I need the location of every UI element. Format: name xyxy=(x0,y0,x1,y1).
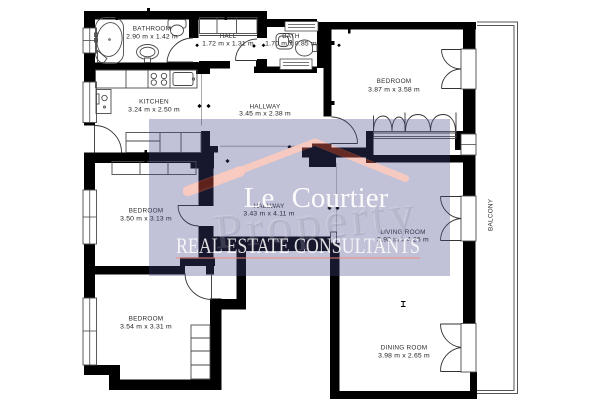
svg-text:BEDROOM: BEDROOM xyxy=(377,78,412,85)
svg-text:3.54 m x 3.31 m: 3.54 m x 3.31 m xyxy=(120,324,172,331)
svg-text:BATHROOM: BATHROOM xyxy=(133,26,171,33)
svg-text:3.98 m x 2.65 m: 3.98 m x 2.65 m xyxy=(378,353,430,360)
svg-text:1.70 m x 0.85 m: 1.70 m x 0.85 m xyxy=(265,41,317,48)
svg-text:3.87 m x 3.58 m: 3.87 m x 3.58 m xyxy=(368,87,420,94)
svg-text:HALL: HALL xyxy=(220,33,237,40)
svg-text:2.90 m x 1.42 m: 2.90 m x 1.42 m xyxy=(126,34,178,41)
svg-text:3.24 m x 2.50 m: 3.24 m x 2.50 m xyxy=(128,107,180,114)
svg-text:1.72 m x 1.31 m: 1.72 m x 1.31 m xyxy=(202,41,254,48)
svg-text:Le Courtier: Le Courtier xyxy=(244,182,389,214)
svg-text:REAL ESTATE CONSULTANTS: REAL ESTATE CONSULTANTS xyxy=(176,233,420,258)
svg-text:BATH: BATH xyxy=(282,33,300,40)
svg-text:BALCONY: BALCONY xyxy=(488,198,495,231)
svg-text:BEDROOM: BEDROOM xyxy=(129,316,164,323)
svg-text:DINING ROOM: DINING ROOM xyxy=(381,345,428,352)
svg-text:3.45 m x 2.38 m: 3.45 m x 2.38 m xyxy=(239,110,291,117)
svg-text:KITCHEN: KITCHEN xyxy=(139,99,169,106)
